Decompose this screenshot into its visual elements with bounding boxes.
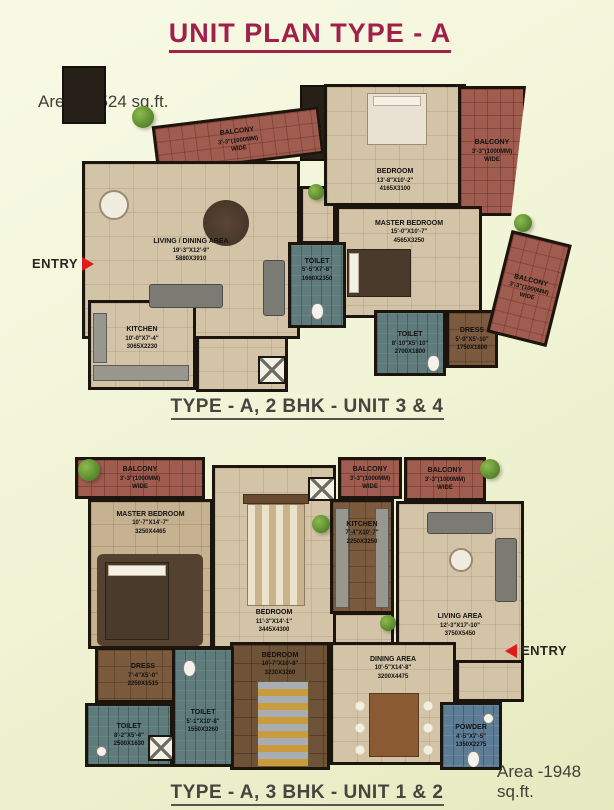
- room-label: BEDROOM10'-7"X10'-8"3230X3260: [262, 651, 299, 677]
- basin-fixture: [96, 746, 107, 757]
- room-label: POWDER4'-5"X7'-5"1350X2275: [455, 723, 487, 749]
- room-kitchen: KITCHEN10'-0"X7'-4"3065X2230: [88, 300, 196, 390]
- room-label: BALCONY3'-3"(1000MM)WIDE: [472, 138, 512, 164]
- room-dining-area: DINING AREA10'-5"X14'-8"3200X4475: [330, 642, 456, 765]
- room-master-bedroom: MASTER BEDROOM10'-7"X14'-7"3250X4465: [88, 499, 213, 649]
- room-kitchen: KITCHEN7'-4"X10'-7"2250X3250: [330, 499, 394, 614]
- entry-label: ENTRY: [521, 643, 567, 658]
- wall-block: [62, 66, 106, 124]
- room-label: TOILET8'-10"X5'-10"2700X1800: [392, 330, 429, 356]
- caption-3bhk: TYPE - A, 3 BHK - UNIT 1 & 2: [0, 782, 614, 804]
- plant-icon: [78, 459, 100, 481]
- toilet-fixture: [467, 751, 480, 768]
- room-master-bedroom: MASTER BEDROOM15'-0"X10'-7"4565X3250: [336, 206, 482, 318]
- plant-icon: [308, 184, 324, 200]
- dining-chairs: [353, 695, 367, 759]
- room-label: BALCONY3'-3"(1000MM)WIDE: [425, 466, 465, 492]
- room-label: TOILET5'-1"X10'-8"1550X3260: [186, 708, 219, 734]
- room-label: DINING AREA10'-5"X14'-8"3200X4475: [370, 655, 416, 681]
- lift-shaft: [308, 477, 336, 501]
- coffee-table: [449, 548, 473, 572]
- bed: [247, 504, 305, 606]
- room-label: LIVING / DINING AREA19'-3"X12'-9"5880X39…: [153, 237, 228, 263]
- room-label: TOILET8'-2"X5'-4"2500X1630: [114, 722, 145, 748]
- sofa: [427, 512, 493, 534]
- sofa: [149, 284, 223, 308]
- pillow: [349, 253, 359, 293]
- plant-icon: [380, 615, 396, 631]
- toilet-fixture: [427, 355, 440, 372]
- headboard: [243, 494, 309, 504]
- kitchen-counter: [93, 313, 107, 363]
- room-toilet-1: TOILET5'-5"X7'-8"1660X2350: [288, 242, 346, 328]
- floor-plan-3bhk: BALCONY3'-3"(1000MM)WIDE MASTER BEDROOM1…: [60, 455, 540, 790]
- plant-icon: [312, 515, 330, 533]
- entry-marker-2bhk: ENTRY: [32, 256, 94, 271]
- sofa: [495, 538, 517, 602]
- floor-plan-2bhk: BALCONY3'-3"(1000MM)WIDE BEDROOM13'-8"X1…: [62, 66, 560, 392]
- kitchen-counter: [93, 365, 189, 381]
- lift-shaft: [258, 356, 286, 384]
- room-label: KITCHEN10'-0"X7'-4"3065X2230: [125, 325, 158, 351]
- plant-icon: [514, 214, 532, 232]
- dining-table: [369, 693, 419, 757]
- duct-shaft: [148, 735, 174, 761]
- sofa: [263, 260, 285, 316]
- room-label: BALCONY3'-3"(1000MM)WIDE: [350, 465, 390, 491]
- toilet-fixture: [183, 660, 196, 677]
- room-bedroom: BEDROOM13'-8"X10'-2"4165X3100: [324, 84, 466, 206]
- entry-arrow-left-icon: [505, 644, 517, 658]
- room-bedroom-3: BEDROOM10'-7"X10'-8"3230X3260: [230, 642, 330, 770]
- room-label: BEDROOM13'-8"X10'-2"4165X3100: [377, 167, 414, 193]
- room-living-area: LIVING AREA12'-3"X17'-10"3750X5450: [396, 501, 524, 663]
- room-label: TOILET5'-5"X7'-8"1660X2350: [302, 257, 333, 283]
- room-label: MASTER BEDROOM10'-7"X14'-7"3250X4465: [116, 510, 184, 536]
- room-label: DRESS5'-9"X5'-10"1750X1800: [455, 326, 488, 352]
- room-toilet-2: TOILET8'-10"X5'-10"2700X1800: [374, 310, 446, 376]
- room-label: BEDROOM11'-3"X14'-1"3445X4300: [256, 608, 293, 634]
- room-label: BALCONY3'-3"(1000MM)WIDE: [216, 125, 259, 155]
- room-label: LIVING AREA12'-3"X17'-10"3750X5450: [438, 612, 483, 638]
- pillow: [373, 96, 421, 106]
- pillow: [108, 565, 166, 576]
- dining-table: [99, 190, 129, 220]
- room-label: DRESS7'-4"X5'-0"2250X1515: [128, 662, 159, 688]
- entry-marker-3bhk: ENTRY: [505, 643, 567, 658]
- room-balcony-right: BALCONY3'-3"(1000MM)WIDE: [404, 457, 486, 501]
- room-powder: POWDER4'-5"X7'-5"1350X2275: [440, 702, 502, 770]
- room-label: MASTER BEDROOM15'-0"X10'-7"4565X3250: [375, 219, 443, 245]
- toilet-fixture: [311, 303, 324, 320]
- bed: [257, 681, 309, 767]
- page-title: UNIT PLAN TYPE - A: [30, 18, 590, 49]
- room-balcony-right-top: BALCONY3'-3"(1000MM)WIDE: [458, 86, 526, 216]
- plant-icon: [480, 459, 500, 479]
- dining-chairs: [421, 695, 435, 759]
- room-label: BALCONY3'-3"(1000MM)WIDE: [120, 465, 160, 491]
- room-balcony-right-lower: BALCONY3'-3"(1000MM)WIDE: [486, 230, 572, 347]
- room-toilet-middle: TOILET5'-1"X10'-8"1550X3260: [172, 647, 234, 767]
- plant-icon: [132, 106, 154, 128]
- room-label: KITCHEN7'-4"X10'-7"2250X3250: [345, 520, 378, 546]
- room-label: BALCONY3'-3"(1000MM)WIDE: [506, 271, 551, 306]
- entry-label: ENTRY: [32, 256, 78, 271]
- entry-arrow-right-icon: [82, 257, 94, 271]
- room-balcony-middle: BALCONY3'-3"(1000MM)WIDE: [338, 457, 402, 499]
- caption-2bhk: TYPE - A, 2 BHK - UNIT 3 & 4: [0, 396, 614, 418]
